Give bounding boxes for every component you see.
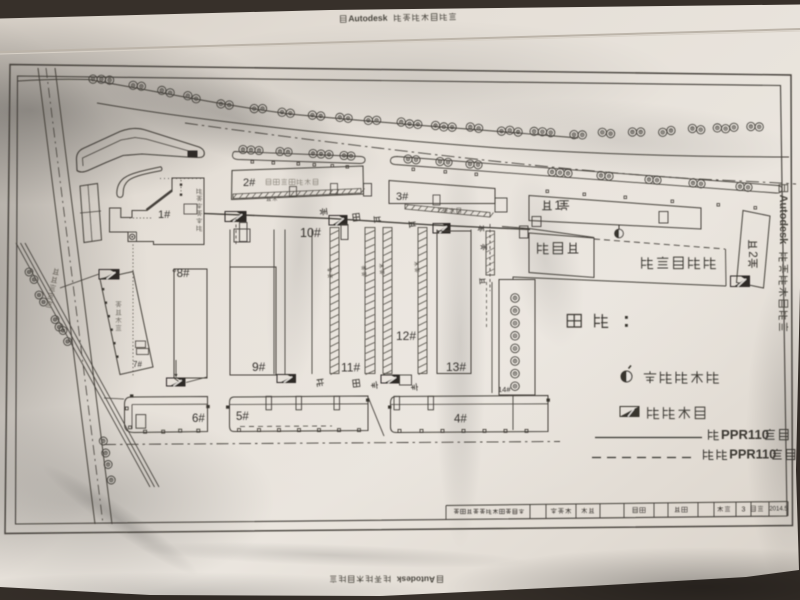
svg-text:Autodesk: Autodesk xyxy=(777,195,789,246)
svg-text:6#: 6# xyxy=(192,413,205,425)
svg-text:Autodesk: Autodesk xyxy=(397,574,436,584)
svg-text:12#: 12# xyxy=(396,329,416,343)
svg-text:13#: 13# xyxy=(446,360,466,374)
svg-text:2014.5: 2014.5 xyxy=(769,506,788,512)
svg-text:3: 3 xyxy=(742,506,746,513)
svg-text:9#: 9# xyxy=(252,360,266,374)
svg-text:PPR110: PPR110 xyxy=(721,427,769,442)
svg-text:°8#: °8# xyxy=(172,268,190,280)
svg-text:14#: 14# xyxy=(498,385,511,394)
svg-text:3#: 3# xyxy=(396,191,409,203)
svg-text:2: 2 xyxy=(746,251,759,257)
svg-text:11#: 11# xyxy=(341,361,360,375)
svg-text:Autodesk: Autodesk xyxy=(348,13,388,24)
svg-text:5#: 5# xyxy=(236,411,249,423)
svg-text:1#: 1# xyxy=(158,209,171,221)
svg-text:7#: 7# xyxy=(133,360,142,369)
svg-text:10#: 10# xyxy=(300,226,321,240)
svg-text:PPR110: PPR110 xyxy=(729,447,776,462)
svg-text:2#: 2# xyxy=(243,177,256,189)
svg-text:4#: 4# xyxy=(454,414,467,426)
